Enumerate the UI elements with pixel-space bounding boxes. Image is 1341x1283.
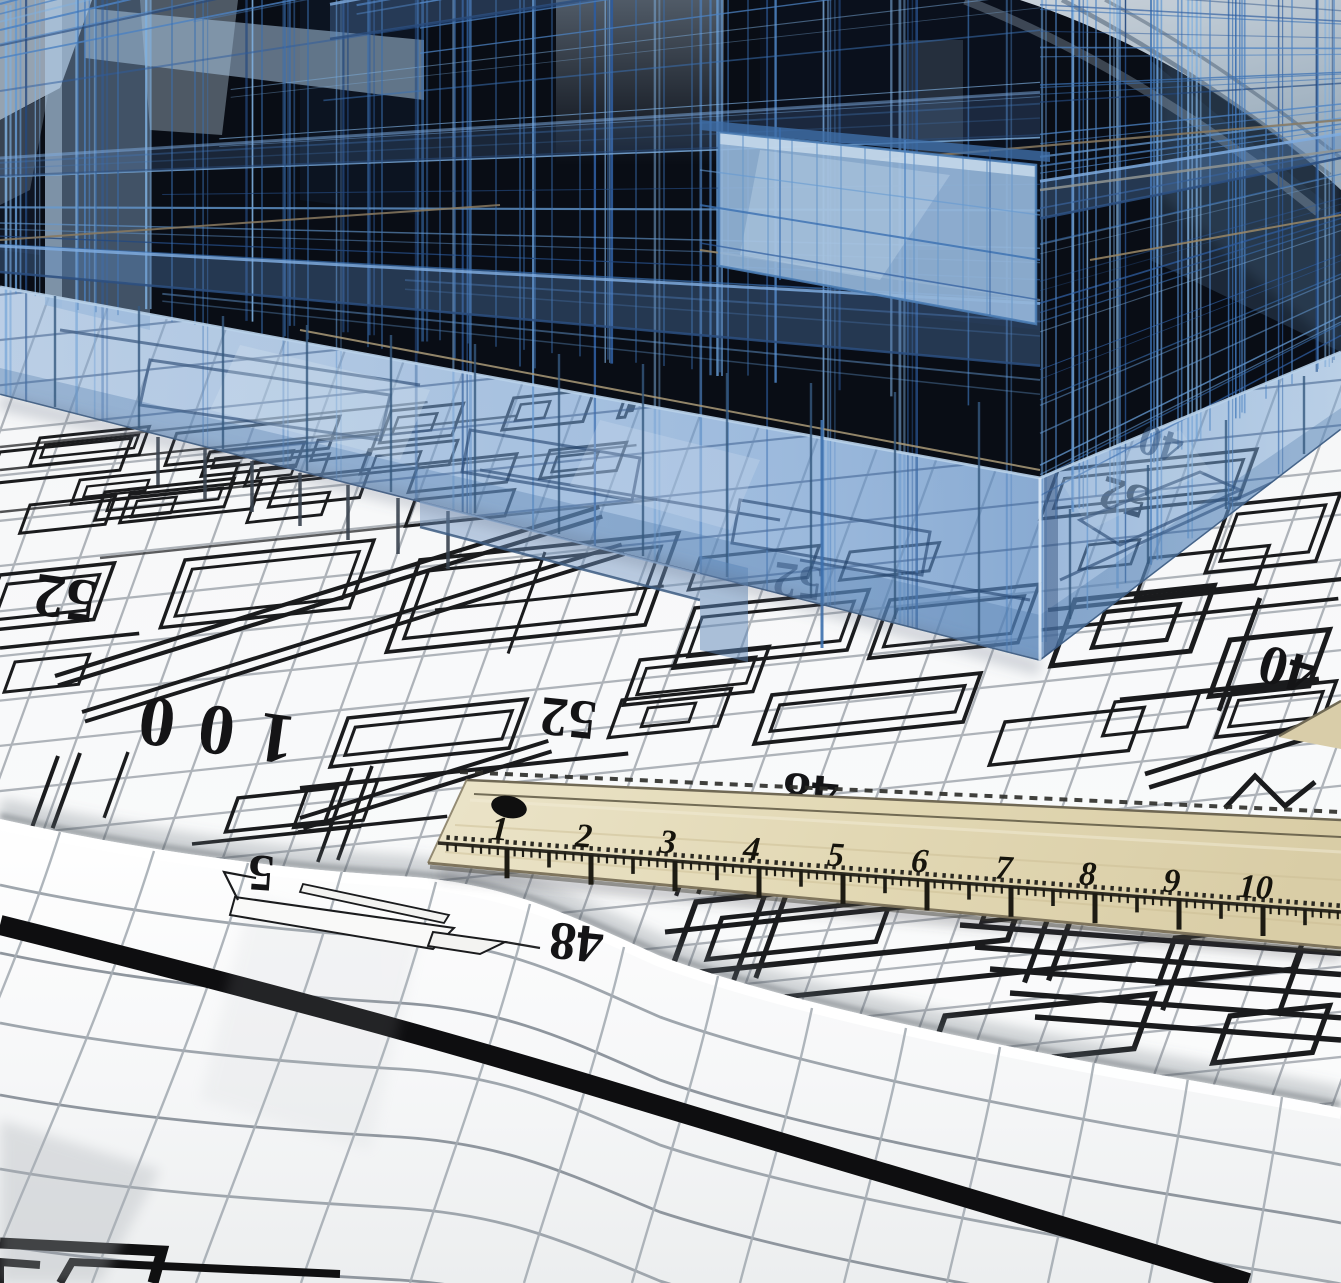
svg-text:3: 3 xyxy=(657,823,678,861)
svg-text:48: 48 xyxy=(546,910,606,975)
svg-text:5: 5 xyxy=(826,836,846,874)
svg-text:8: 8 xyxy=(1078,855,1098,893)
svg-text:10: 10 xyxy=(1237,868,1273,907)
svg-text:6: 6 xyxy=(910,842,930,880)
svg-text:5: 5 xyxy=(246,843,276,902)
svg-text:4: 4 xyxy=(741,830,762,868)
svg-text:52: 52 xyxy=(30,560,101,636)
svg-text:9: 9 xyxy=(1162,862,1182,900)
svg-text:52: 52 xyxy=(537,684,599,752)
svg-text:2: 2 xyxy=(573,817,594,855)
